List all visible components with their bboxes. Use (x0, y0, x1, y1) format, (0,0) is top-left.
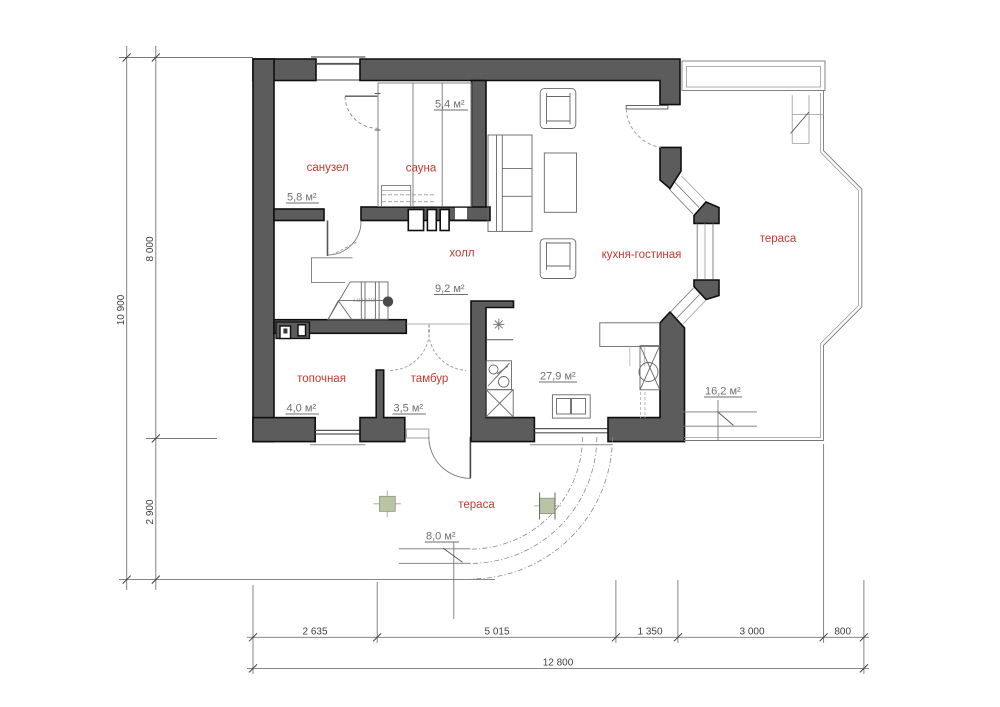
svg-text:8 000: 8 000 (145, 236, 156, 261)
svg-text:санузел: санузел (307, 162, 349, 174)
svg-text:холл: холл (449, 248, 474, 260)
svg-text:5 015: 5 015 (484, 627, 509, 638)
svg-text:сауна: сауна (406, 163, 437, 175)
svg-text:5,4 м²: 5,4 м² (435, 99, 465, 111)
svg-text:8,0 м²: 8,0 м² (426, 531, 456, 543)
svg-text:тамбур: тамбур (411, 373, 449, 385)
svg-text:27,9 м²: 27,9 м² (540, 371, 576, 383)
svg-text:1 350: 1 350 (637, 627, 662, 638)
svg-text:800: 800 (834, 627, 851, 638)
svg-text:топочная: топочная (297, 373, 346, 385)
svg-text:9,2 м²: 9,2 м² (435, 283, 465, 295)
svg-text:4,0 м²: 4,0 м² (287, 403, 317, 415)
svg-text:16,2 м²: 16,2 м² (705, 386, 741, 398)
svg-text:тераса: тераса (760, 233, 797, 245)
svg-text:10 900: 10 900 (116, 294, 127, 325)
svg-text:кухня-гостиная: кухня-гостиная (602, 249, 682, 261)
svg-text:2 900: 2 900 (145, 499, 156, 524)
svg-text:3,5 м²: 3,5 м² (394, 403, 424, 415)
svg-text:1.115-2.310: 1.115-2.310 (353, 298, 376, 303)
svg-text:2 635: 2 635 (302, 627, 327, 638)
svg-text:12 800: 12 800 (543, 658, 574, 669)
svg-text:5,8 м²: 5,8 м² (287, 192, 317, 204)
svg-text:тераса: тераса (458, 499, 495, 511)
svg-text:3 000: 3 000 (739, 627, 764, 638)
